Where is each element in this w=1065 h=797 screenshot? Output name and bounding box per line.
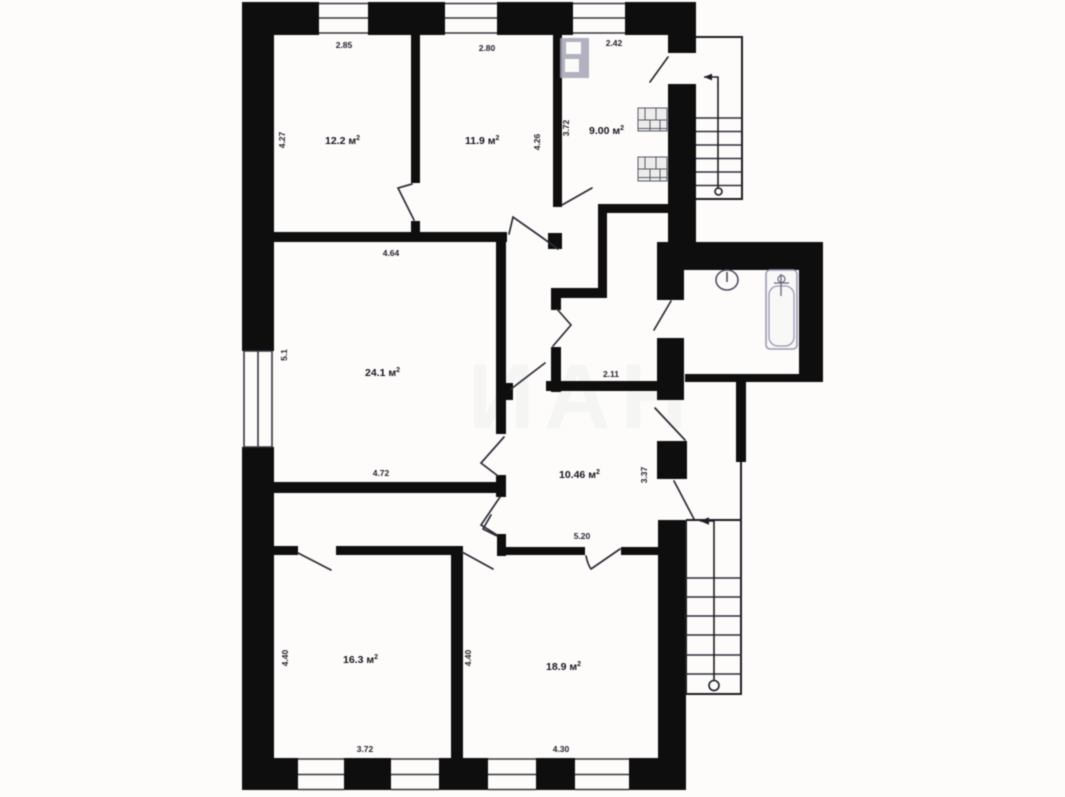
svg-text:2.85: 2.85 bbox=[336, 40, 353, 50]
svg-text:5.1: 5.1 bbox=[279, 349, 289, 361]
svg-text:2.11: 2.11 bbox=[603, 369, 619, 379]
svg-text:18.9 м2: 18.9 м2 bbox=[546, 661, 581, 673]
svg-text:4.27: 4.27 bbox=[277, 131, 287, 148]
svg-text:4.30: 4.30 bbox=[553, 744, 570, 754]
svg-text:11.9 м2: 11.9 м2 bbox=[465, 135, 500, 147]
svg-text:12.2 м2: 12.2 м2 bbox=[325, 135, 360, 147]
svg-text:4.72: 4.72 bbox=[373, 468, 390, 478]
svg-text:16.3 м2: 16.3 м2 bbox=[343, 654, 378, 666]
svg-text:5.20: 5.20 bbox=[574, 531, 591, 541]
svg-text:2.42: 2.42 bbox=[606, 38, 623, 48]
svg-text:3.72: 3.72 bbox=[561, 119, 571, 136]
svg-text:4.40: 4.40 bbox=[463, 649, 473, 666]
svg-text:24.1 м2: 24.1 м2 bbox=[365, 367, 400, 379]
svg-text:4.26: 4.26 bbox=[532, 133, 542, 150]
svg-text:4.64: 4.64 bbox=[383, 248, 400, 258]
svg-text:10.46 м2: 10.46 м2 bbox=[559, 469, 600, 481]
svg-text:3.37: 3.37 bbox=[639, 466, 649, 483]
svg-text:4.40: 4.40 bbox=[280, 649, 290, 666]
svg-text:2.80: 2.80 bbox=[479, 43, 496, 53]
svg-text:3.72: 3.72 bbox=[357, 744, 374, 754]
svg-text:9.00 м2: 9.00 м2 bbox=[589, 125, 624, 137]
